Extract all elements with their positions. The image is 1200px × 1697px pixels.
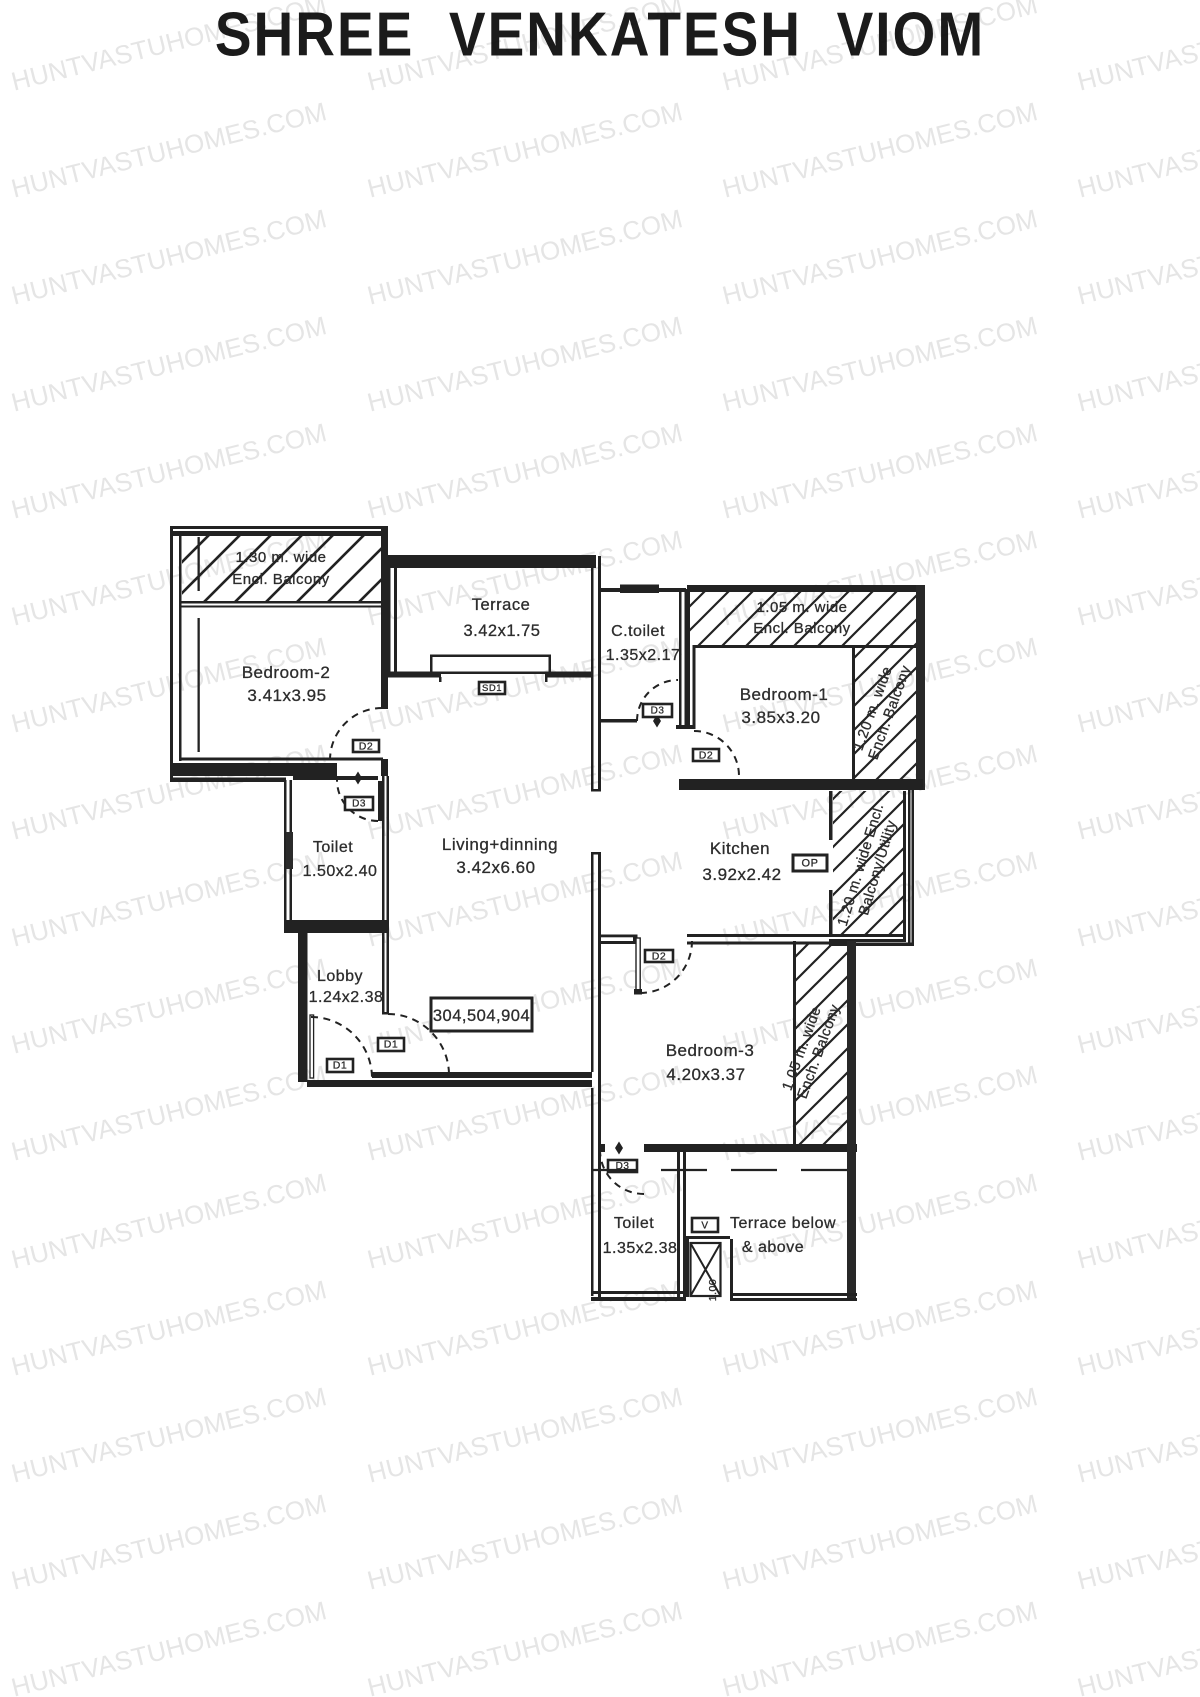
- svg-text:D1: D1: [333, 1060, 347, 1072]
- svg-text:1.30 m. wide: 1.30 m. wide: [235, 549, 326, 566]
- svg-text:C.toilet: C.toilet: [611, 623, 665, 640]
- svg-text:Lobby: Lobby: [317, 968, 363, 985]
- svg-text:& above: & above: [742, 1239, 804, 1256]
- svg-text:3.92x2.42: 3.92x2.42: [702, 865, 781, 884]
- svg-text:D1: D1: [384, 1039, 398, 1051]
- svg-text:SD1: SD1: [482, 683, 502, 694]
- svg-text:D2: D2: [359, 741, 373, 753]
- svg-text:1.35x2.38: 1.35x2.38: [603, 1240, 678, 1257]
- svg-text:V: V: [701, 1221, 708, 1232]
- svg-text:OP: OP: [802, 858, 819, 870]
- svg-text:Living+dinning: Living+dinning: [442, 835, 558, 854]
- svg-text:D3: D3: [352, 799, 366, 810]
- svg-text:Terrace: Terrace: [472, 596, 531, 614]
- svg-text:D3: D3: [651, 706, 665, 717]
- svg-text:3.42x1.75: 3.42x1.75: [464, 622, 541, 640]
- svg-text:1.50x2.40: 1.50x2.40: [303, 863, 378, 880]
- svg-text:D2: D2: [652, 951, 666, 963]
- svg-text:Toilet: Toilet: [313, 839, 353, 856]
- svg-text:Bedroom-1: Bedroom-1: [740, 685, 829, 704]
- svg-text:3.41x3.95: 3.41x3.95: [247, 686, 326, 705]
- svg-text:1.00: 1.00: [707, 1279, 719, 1301]
- svg-text:Kitchen: Kitchen: [710, 839, 770, 858]
- svg-text:1.05 m. wide: 1.05 m. wide: [756, 599, 847, 616]
- svg-text:Bedroom-2: Bedroom-2: [242, 663, 331, 682]
- svg-text:D2: D2: [699, 750, 713, 762]
- svg-text:3.85x3.20: 3.85x3.20: [741, 708, 820, 727]
- svg-text:Encl. Balcony: Encl. Balcony: [232, 571, 329, 588]
- svg-text:1.35x2.17: 1.35x2.17: [606, 647, 681, 664]
- svg-text:Bedroom-3: Bedroom-3: [666, 1041, 755, 1060]
- svg-text:4.20x3.37: 4.20x3.37: [666, 1065, 745, 1084]
- svg-text:3.42x6.60: 3.42x6.60: [456, 858, 535, 877]
- svg-text:Terrace below: Terrace below: [730, 1215, 836, 1232]
- svg-text:304,504,904: 304,504,904: [433, 1007, 530, 1025]
- svg-text:1.24x2.38: 1.24x2.38: [309, 989, 384, 1006]
- svg-text:Encl. Balcony: Encl. Balcony: [753, 620, 850, 637]
- svg-text:Toilet: Toilet: [614, 1215, 654, 1232]
